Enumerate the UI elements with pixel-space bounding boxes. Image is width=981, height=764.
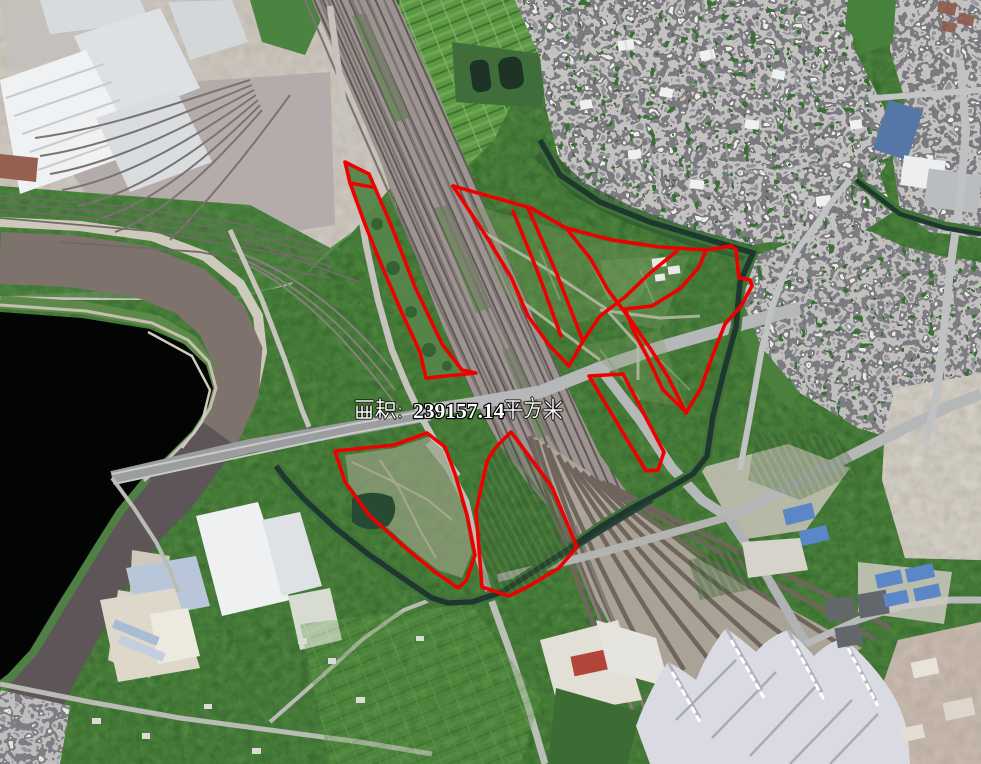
- svg-text:239157.14: 239157.14: [413, 399, 505, 423]
